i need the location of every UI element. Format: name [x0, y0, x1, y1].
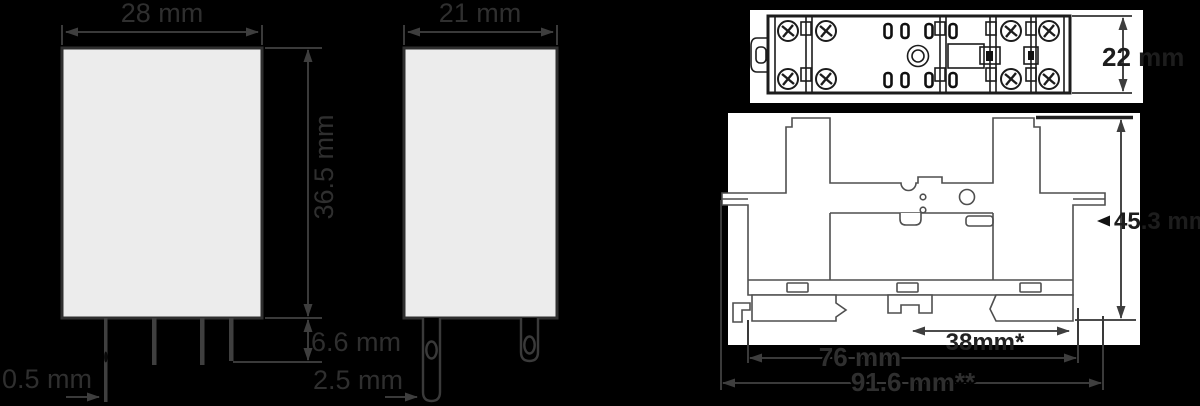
dimension-drawing-page: 28 mm 36.5 mm 6.6 mm 0.5 mm	[0, 0, 1200, 406]
dim-label-6-6mm: 6.6 mm	[311, 327, 401, 357]
socket-top-view: 22 mm	[750, 10, 1184, 103]
screw-icon	[778, 69, 798, 89]
dim-pin-thickness-0-5: 0.5 mm	[2, 364, 99, 397]
screw-icon	[1039, 21, 1059, 41]
dim-label-21mm: 21 mm	[439, 0, 522, 28]
pin-hole	[524, 337, 534, 354]
dim-label-22mm: 22 mm	[1102, 42, 1184, 72]
screw-icon	[1001, 21, 1021, 41]
slot-icon	[926, 73, 933, 87]
slot-icon	[926, 24, 933, 38]
slot-icon	[902, 73, 909, 87]
pin-hole	[104, 352, 107, 363]
dim-label-91-6mm: 91.6 mm**	[851, 367, 976, 397]
screw-icon	[778, 21, 798, 41]
relay-pin	[200, 318, 205, 365]
screw-icon	[1001, 69, 1021, 89]
dim-label-45-3mm: 45.3 mm	[1114, 208, 1200, 235]
dim-label-2-5mm: 2.5 mm	[313, 365, 403, 395]
latch-detail	[986, 51, 993, 61]
relay-side-body	[404, 48, 557, 318]
screw-icon	[1039, 69, 1059, 89]
slot-icon	[950, 24, 957, 38]
relay-pin	[229, 318, 234, 361]
dim-label-38mm: 38mm*	[946, 329, 1025, 356]
left-foot	[752, 295, 846, 321]
dim-label-36-5mm: 36.5 mm	[309, 114, 339, 219]
dim-pin-width-2-5: 2.5 mm	[313, 365, 417, 397]
dim-label-28mm: 28 mm	[121, 0, 204, 28]
pin-hole	[426, 342, 436, 359]
relay-front-body	[62, 48, 262, 318]
dim-label-0-5mm: 0.5 mm	[2, 364, 92, 394]
slot-icon	[902, 24, 909, 38]
deck-notch	[900, 213, 921, 225]
relay-pin	[152, 318, 157, 365]
slot-icon	[885, 24, 892, 38]
screw-icon	[816, 21, 836, 41]
screw-icon	[816, 69, 836, 89]
slot-icon	[885, 73, 892, 87]
dimension-drawing: 28 mm 36.5 mm 6.6 mm 0.5 mm	[0, 0, 1200, 406]
slot-icon	[950, 73, 957, 87]
right-foot	[990, 295, 1073, 321]
